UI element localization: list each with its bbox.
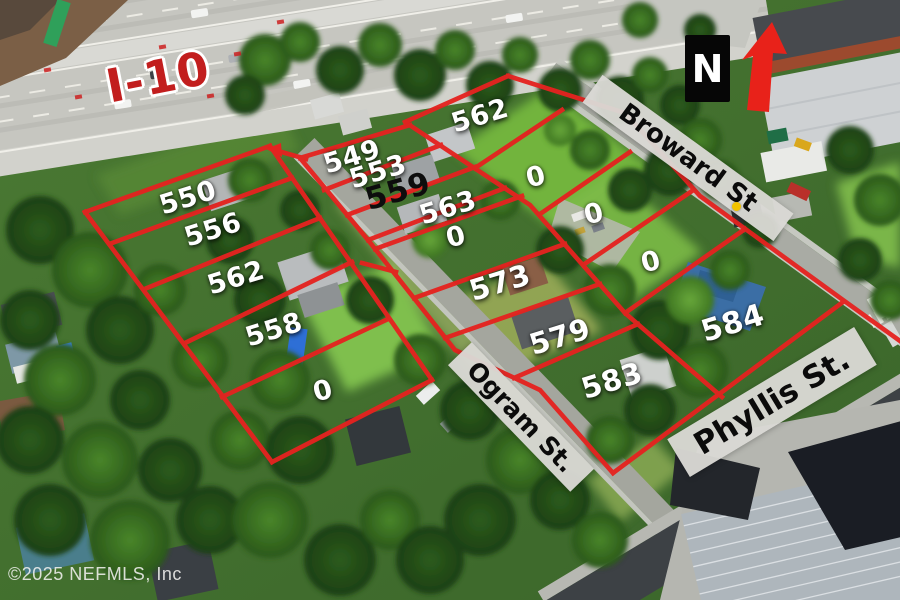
north-indicator: N [685,35,730,102]
copyright-text: ©2025 NEFMLS, Inc [8,564,182,585]
north-letter: N [692,47,724,91]
map-pin-dot [732,202,741,211]
aerial-parcel-map: 550 556 562 558 0 549 553 559 562 563 0 … [0,0,900,600]
